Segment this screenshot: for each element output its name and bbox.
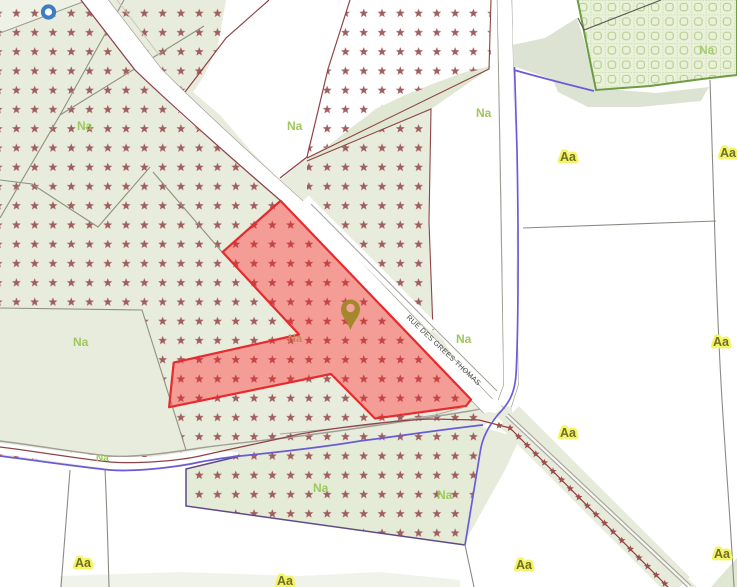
svg-text:Aa: Aa — [277, 574, 294, 587]
svg-text:Na: Na — [699, 43, 715, 57]
svg-text:Aa: Aa — [516, 558, 533, 572]
svg-text:Aa: Aa — [75, 556, 92, 570]
svg-text:Aa: Aa — [560, 426, 577, 440]
svg-text:Aa: Aa — [714, 547, 731, 561]
svg-text:Aa: Aa — [713, 335, 730, 349]
svg-text:Na: Na — [287, 119, 303, 133]
svg-text:Na: Na — [77, 119, 93, 133]
svg-text:Aa: Aa — [720, 146, 737, 160]
svg-text:Na: Na — [288, 333, 303, 345]
svg-text:Na: Na — [476, 106, 492, 120]
svg-text:Na: Na — [73, 335, 89, 349]
svg-text:Na: Na — [456, 332, 472, 346]
svg-text:Aa: Aa — [560, 150, 577, 164]
svg-text:Na: Na — [313, 481, 329, 495]
svg-text:Na: Na — [437, 488, 453, 502]
svg-text:Na: Na — [96, 453, 109, 464]
